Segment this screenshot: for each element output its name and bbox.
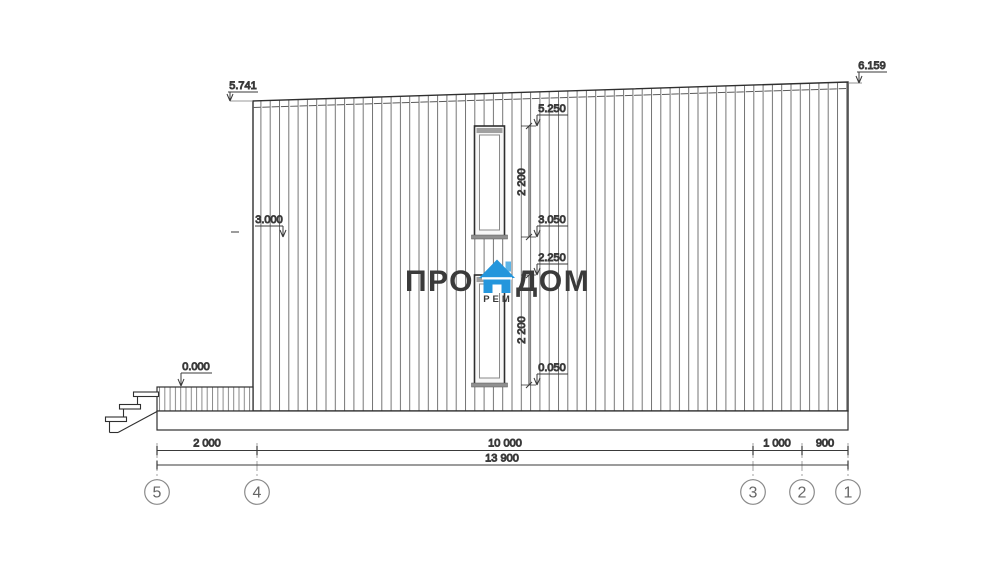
axis-bubbles: 5 4 3 2 1 [145, 480, 861, 505]
elevation-label-roof-left: 5.741 [229, 80, 257, 92]
dimension-label-total: 13 900 [485, 453, 519, 465]
dimension-label-2-1: 900 [816, 438, 834, 450]
watermark-text-dom: ДОМ [516, 265, 590, 298]
axis-label-3: 3 [749, 485, 758, 502]
watermark-text-pro: ПРО [405, 265, 474, 298]
upper-window-sill [472, 235, 508, 239]
dimension-label-5-4: 2 000 [193, 438, 221, 450]
axis-label-1: 1 [844, 485, 853, 502]
stairs [106, 392, 159, 433]
drawing-svg: 5.741 6.159 3.000 0.000 5.250 3.050 [0, 0, 1000, 563]
upper-window-head [477, 128, 503, 133]
facade-elevation-drawing: 5.741 6.159 3.000 0.000 5.250 3.050 [0, 0, 1000, 563]
axis-label-4: 4 [253, 485, 262, 502]
foundation [157, 411, 848, 430]
elevation-label-porch: 0.000 [182, 361, 210, 373]
upper-window-glass [480, 135, 500, 230]
dimension-label-4-3: 10 000 [488, 438, 522, 450]
dimension-label-lower-window-height: 2 200 [516, 316, 528, 344]
dimension-label-3-2: 1 000 [763, 438, 791, 450]
elevation-label-lower-window-top: 2.250 [538, 252, 566, 264]
elevation-label-lower-window-bottom: 0.050 [538, 362, 566, 374]
stair-tread-3 [106, 417, 127, 422]
dimension-label-upper-window-height: 2 200 [516, 168, 528, 196]
dimension-line-total: 13 900 [157, 453, 848, 470]
axis-label-2: 2 [798, 485, 807, 502]
stair-tread-1 [134, 392, 159, 397]
elevation-label-upper-window-top: 5.250 [538, 103, 566, 115]
elevation-mark-roof-left: 5.741 [227, 80, 258, 101]
watermark-text-rem: РЕМ [483, 294, 513, 305]
elevation-mark-porch: 0.000 [178, 361, 212, 386]
stair-tread-2 [120, 405, 141, 410]
axis-label-5: 5 [153, 485, 162, 502]
elevation-label-upper-window-bottom: 3.050 [538, 214, 566, 226]
upper-window [472, 126, 508, 239]
porch-deck [157, 387, 253, 411]
lower-window-sill [472, 383, 508, 387]
elevation-label-roof-right: 6.159 [858, 60, 886, 72]
elevation-label-second-floor: 3.000 [255, 214, 283, 226]
elevation-mark-roof-right: 6.159 [848, 60, 887, 83]
